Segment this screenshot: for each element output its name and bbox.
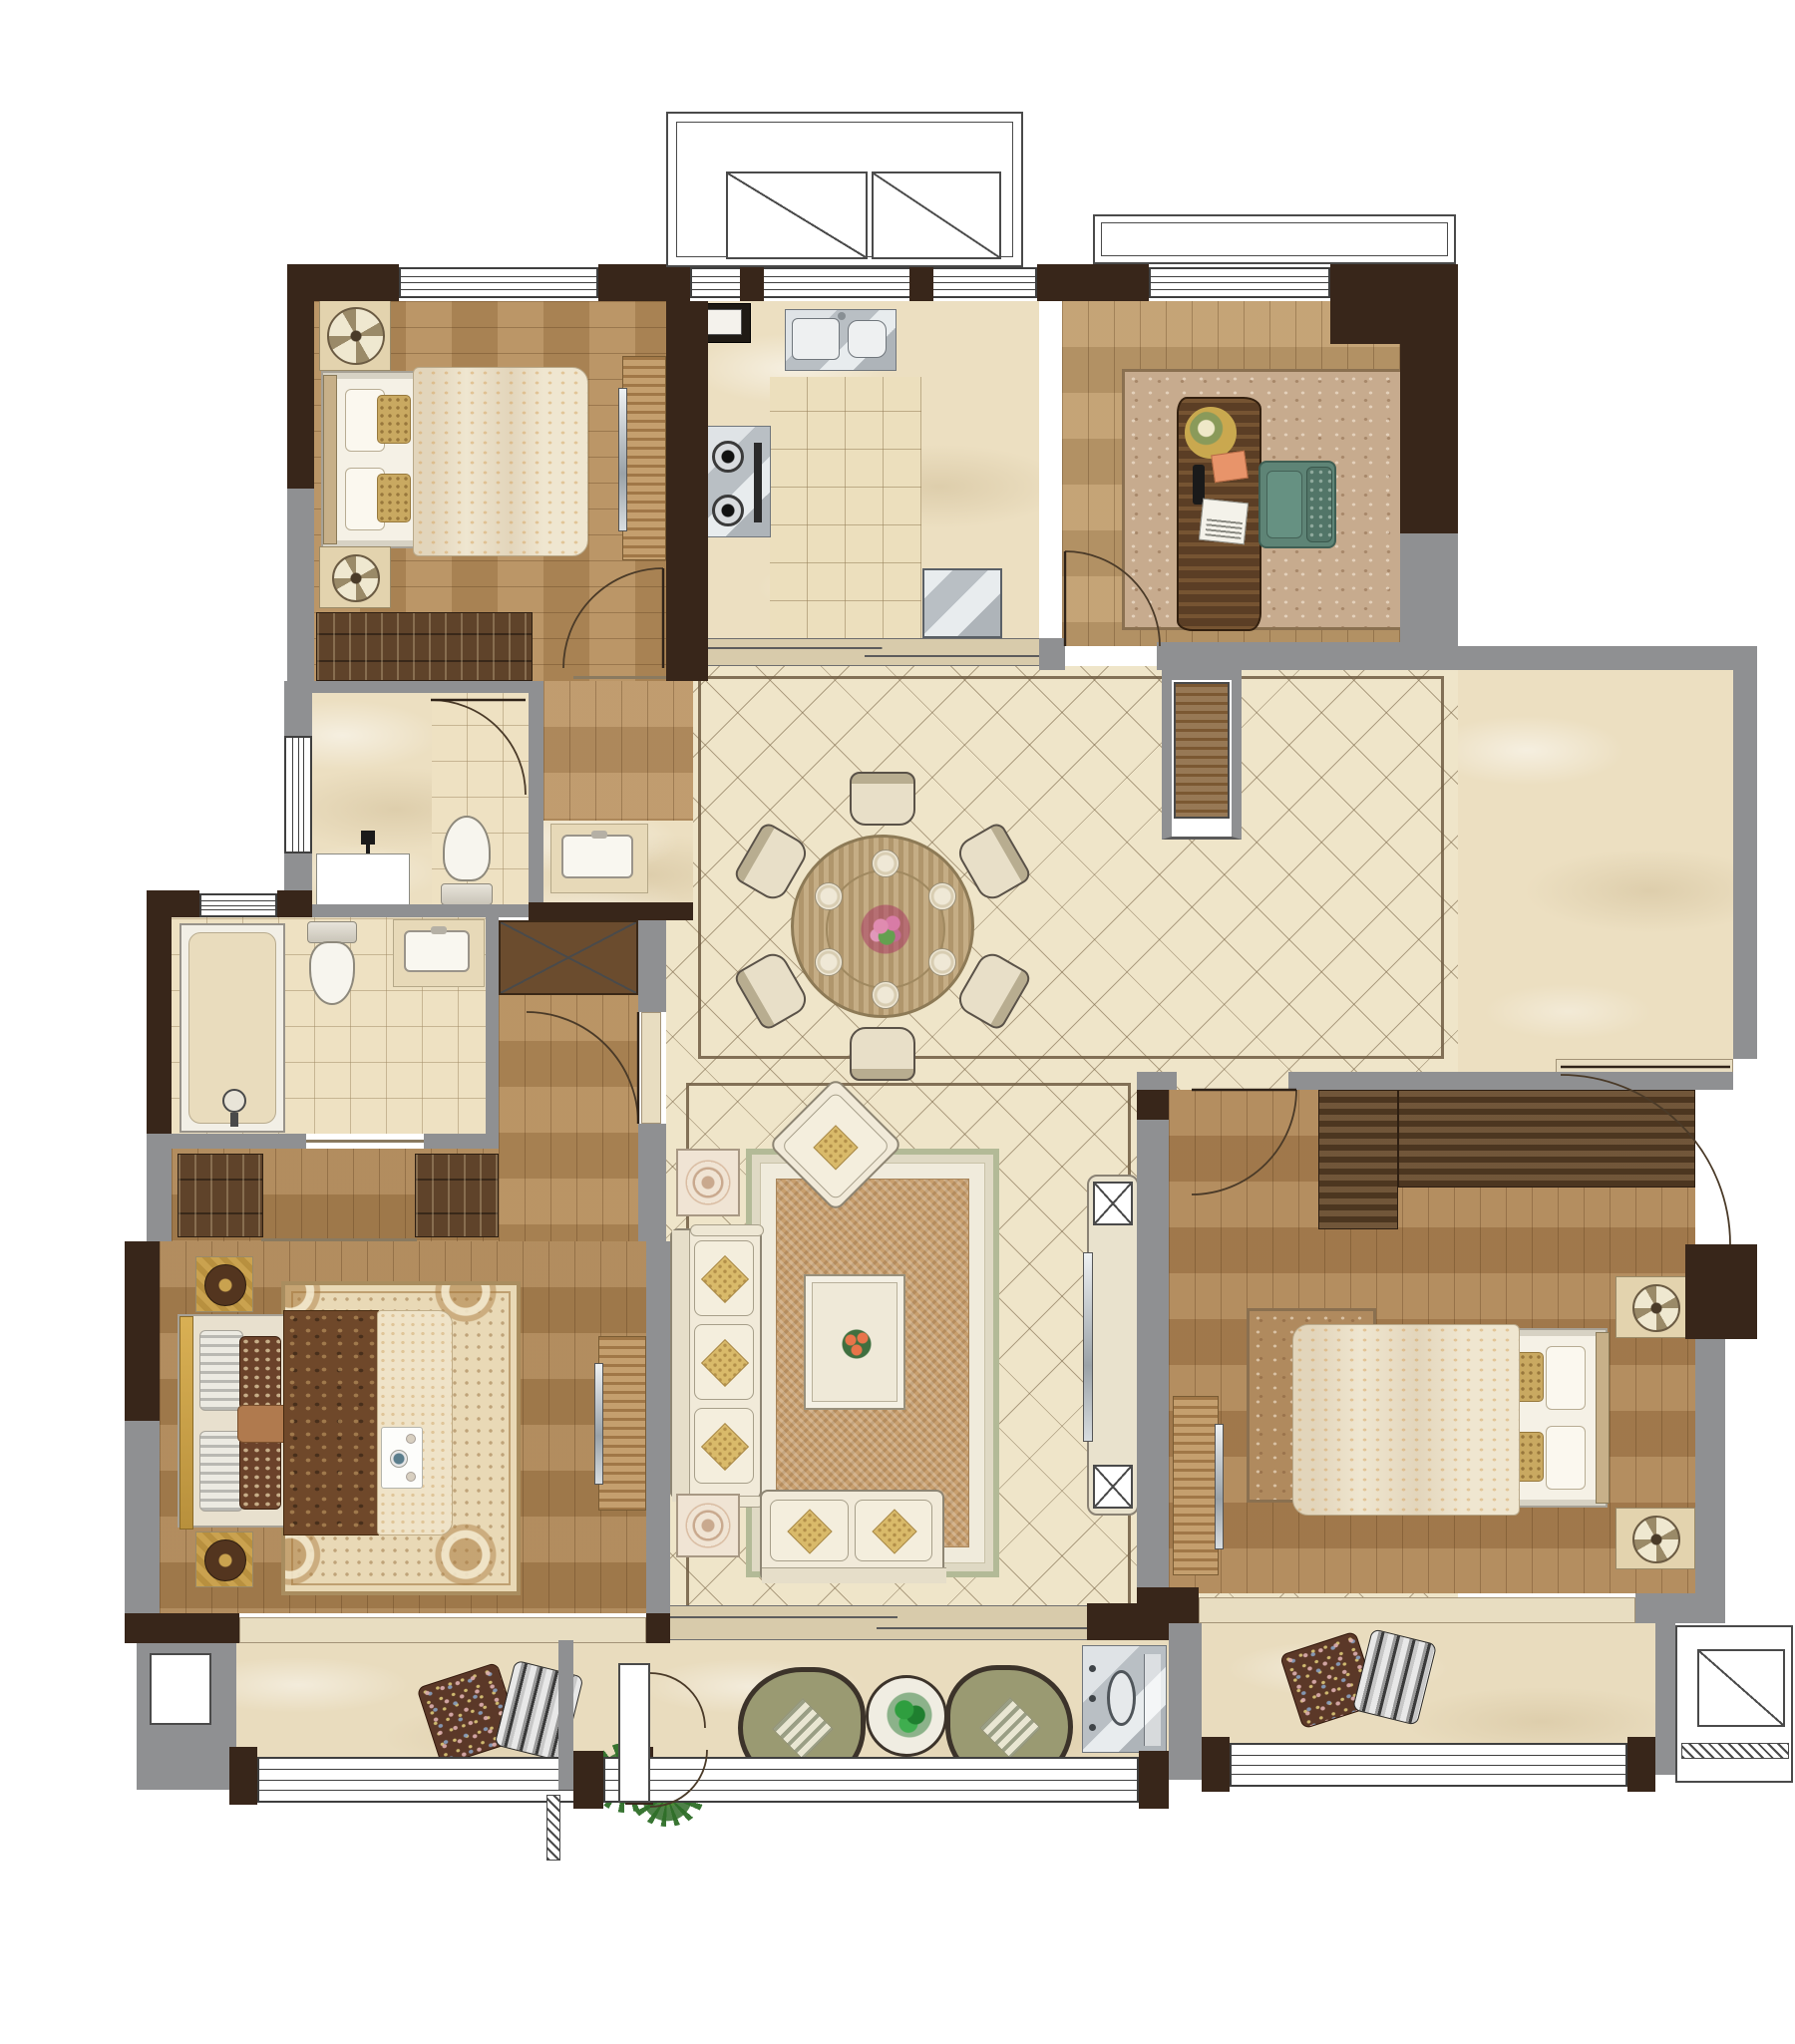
place-setting-icon xyxy=(928,948,956,976)
pillow xyxy=(1546,1346,1586,1410)
ac-pane-icon xyxy=(1697,1649,1785,1727)
seat-cushion xyxy=(855,1500,933,1561)
wall-segment xyxy=(1655,1623,1675,1775)
wall-segment xyxy=(284,681,543,693)
wall-segment xyxy=(1330,264,1458,344)
plate-icon xyxy=(390,1450,408,1468)
coffee-table xyxy=(804,1274,905,1410)
fan-lamp-icon xyxy=(1632,1516,1680,1563)
wall-segment xyxy=(1635,1593,1725,1623)
wall-segment xyxy=(638,920,666,1012)
seat-cushion xyxy=(694,1324,754,1400)
wardrobe-bedroom-2 xyxy=(316,612,533,681)
fan-lamp-icon xyxy=(327,307,385,365)
washer-knob-icon xyxy=(1089,1665,1096,1672)
wall-segment xyxy=(1400,533,1458,646)
wall-segment xyxy=(1039,638,1065,670)
dining-chair xyxy=(850,1027,915,1081)
side-table-b xyxy=(676,1494,740,1557)
pillow xyxy=(199,1330,243,1411)
toilet-bath-2 xyxy=(305,921,361,1011)
toilet-bowl xyxy=(443,816,491,881)
nightstand-bedroom-3-b xyxy=(1615,1508,1695,1569)
threshold-master-balcony xyxy=(239,1617,646,1643)
duvet xyxy=(413,367,588,556)
wall-segment xyxy=(229,1747,257,1805)
tv-screen-icon xyxy=(1215,1424,1224,1549)
window-study xyxy=(1149,267,1330,298)
toilet-bath-1 xyxy=(439,816,497,907)
bay-pane-icon xyxy=(726,171,868,259)
floor-pillows-balcony-3 xyxy=(1281,1631,1441,1726)
wall-segment xyxy=(1733,670,1757,1059)
pillow xyxy=(1546,1426,1586,1490)
wall-segment xyxy=(1202,1737,1230,1792)
wall-segment xyxy=(573,1751,603,1809)
vanity-sink-nook xyxy=(550,824,648,893)
floor-entry-foyer xyxy=(1458,670,1733,1072)
accent-pillow xyxy=(239,1436,281,1510)
kitchen-sink xyxy=(785,309,897,371)
wall-segment xyxy=(125,1241,160,1421)
washer-door-icon xyxy=(1107,1670,1136,1726)
faucet-icon xyxy=(591,831,607,839)
plate-icon xyxy=(406,1472,416,1482)
washer-knob-icon xyxy=(1089,1724,1096,1731)
bay-window-kitchen xyxy=(666,112,1023,267)
sliding-door-kitchen xyxy=(690,638,1039,666)
wall-segment xyxy=(529,902,693,920)
place-setting-icon xyxy=(815,882,843,910)
balcony-plant-table xyxy=(866,1675,947,1757)
record-player-icon xyxy=(204,1539,246,1581)
gas-stove xyxy=(701,426,771,537)
wall-segment xyxy=(638,1124,666,1241)
wall-section-hatch xyxy=(546,1795,560,1861)
tub-faucet-stem xyxy=(230,1113,238,1127)
headboard xyxy=(1596,1332,1610,1504)
accent-pillow xyxy=(239,1336,281,1410)
washer-knob-icon xyxy=(1089,1695,1096,1702)
tv-console-living xyxy=(1087,1175,1139,1516)
nightstand-master-b xyxy=(195,1532,253,1587)
storage-cabinet xyxy=(499,920,638,995)
headboard xyxy=(323,375,337,544)
nightstand-master-a xyxy=(195,1256,253,1312)
gold-pillow-icon xyxy=(701,1339,749,1387)
floor-pillow-striped xyxy=(1352,1628,1437,1726)
nightstand-bedroom-2-a xyxy=(319,299,391,371)
window-bath-1 xyxy=(284,736,312,853)
duct-shaft xyxy=(1162,670,1242,840)
wall-segment xyxy=(287,264,399,301)
floor-master-corridor xyxy=(499,995,638,1244)
chair-back-cushion xyxy=(1306,467,1332,542)
wardrobe-closet-b xyxy=(415,1154,499,1237)
balcony-side-window xyxy=(150,1653,211,1725)
tv-cabinet-bedroom-3 xyxy=(1173,1396,1219,1575)
window-balcony-3 xyxy=(1230,1743,1627,1787)
gold-pillow-icon xyxy=(872,1509,916,1553)
burner-icon xyxy=(712,495,744,526)
wall-segment xyxy=(909,264,933,301)
sofa-back xyxy=(762,1567,946,1583)
wall-segment xyxy=(1169,1623,1202,1780)
tv-screen-icon xyxy=(618,388,627,531)
wall-segment xyxy=(1400,646,1757,670)
washing-machine xyxy=(1082,1645,1167,1753)
wall-segment xyxy=(284,693,312,736)
floor-plan-canvas xyxy=(0,0,1795,2044)
wall-segment xyxy=(558,1640,573,1790)
ac-ledge xyxy=(1675,1625,1793,1783)
wall-segment xyxy=(740,264,764,301)
folding-door-balcony xyxy=(618,1663,650,1803)
gold-pillow-icon xyxy=(701,1423,749,1471)
sofa-arm xyxy=(690,1224,764,1236)
speaker-icon xyxy=(1093,1182,1133,1225)
wall-segment xyxy=(147,917,172,1134)
tv-screen-icon xyxy=(594,1363,603,1485)
bed-bedroom-3 xyxy=(1298,1328,1608,1508)
threshold-master-corridor xyxy=(641,1012,661,1124)
sink-basin xyxy=(404,930,470,972)
wall-segment xyxy=(598,264,690,301)
ac-hatch xyxy=(1681,1743,1789,1759)
fan-lamp-icon xyxy=(1632,1284,1680,1332)
wall-segment xyxy=(1685,1244,1757,1339)
threshold-bath-2 xyxy=(306,1140,424,1143)
breakfast-tray xyxy=(381,1427,423,1489)
sliding-door-living-balcony xyxy=(666,1605,1087,1640)
nightstand-bedroom-2-b xyxy=(319,546,391,608)
bed-bedroom-2 xyxy=(321,371,578,548)
wall-segment xyxy=(147,1134,306,1149)
shower-tray xyxy=(316,853,410,905)
desk-study xyxy=(1177,397,1261,631)
wall-segment xyxy=(1400,344,1458,533)
wall-segment xyxy=(287,489,314,681)
bay-pane-icon xyxy=(872,171,1001,259)
place-setting-icon xyxy=(815,948,843,976)
wall-segment xyxy=(1695,1339,1725,1593)
tv-cabinet-master xyxy=(598,1336,646,1511)
accent-pillow xyxy=(377,474,411,522)
wall-segment xyxy=(666,638,690,670)
wall-segment xyxy=(1627,1737,1655,1792)
wall-segment xyxy=(1139,1751,1169,1809)
place-setting-icon xyxy=(928,882,956,910)
flower-centerpiece-icon xyxy=(856,899,915,959)
dining-area-frame xyxy=(698,676,1444,1059)
wall-segment xyxy=(125,1613,239,1643)
toilet-bowl xyxy=(309,941,355,1005)
wall-segment xyxy=(277,890,312,917)
paper-icon xyxy=(1211,451,1249,483)
wall-segment xyxy=(147,1149,172,1241)
faucet-icon xyxy=(431,926,447,934)
lounge-pillow-icon xyxy=(772,1698,834,1760)
window-bedroom-2 xyxy=(399,267,598,298)
wall-segment xyxy=(1137,1072,1177,1090)
wall-segment xyxy=(125,1421,160,1613)
washer-panel xyxy=(1144,1654,1161,1746)
wall-segment xyxy=(284,904,529,917)
place-setting-icon xyxy=(872,850,899,877)
floor-hall-north xyxy=(543,681,693,821)
tv-screen-icon xyxy=(1083,1252,1093,1442)
wall-segment xyxy=(287,301,314,489)
sofa-back xyxy=(672,1230,690,1502)
headboard xyxy=(179,1316,193,1530)
wardrobe-closet-a xyxy=(178,1154,263,1237)
sink-basin xyxy=(848,320,887,358)
cushion xyxy=(237,1405,289,1443)
bathtub xyxy=(179,923,285,1133)
blanket-cream xyxy=(377,1310,453,1535)
side-table-a xyxy=(676,1149,740,1216)
nightstand-bedroom-3-a xyxy=(1615,1276,1695,1338)
duvet xyxy=(1292,1324,1520,1516)
wall-segment xyxy=(1288,1072,1733,1090)
loveseat xyxy=(760,1490,944,1581)
dining-table xyxy=(791,835,974,1018)
tub-faucet-icon xyxy=(222,1089,246,1113)
faucet-icon xyxy=(838,312,846,320)
sink-basin xyxy=(792,318,840,360)
gold-pillow-icon xyxy=(701,1255,749,1303)
bed-master xyxy=(178,1314,445,1528)
globe-icon xyxy=(1185,407,1237,459)
wall-segment xyxy=(1137,1090,1169,1120)
wall-segment xyxy=(486,917,499,1149)
seat-cushion xyxy=(770,1500,849,1561)
armchair-study xyxy=(1258,461,1336,548)
plate-icon xyxy=(406,1434,416,1444)
toilet-tank xyxy=(307,921,357,943)
pillow xyxy=(199,1431,243,1512)
threshold-closet xyxy=(261,1238,417,1241)
wall-segment xyxy=(1137,1587,1199,1623)
wall-segment xyxy=(1037,264,1149,301)
tv-cabinet-bedroom-2 xyxy=(622,356,666,560)
gold-pillow-icon xyxy=(788,1509,833,1553)
fan-lamp-icon xyxy=(332,554,380,602)
wall-segment xyxy=(646,1241,670,1613)
seat-cushion xyxy=(694,1240,754,1316)
place-setting-icon xyxy=(872,981,899,1009)
ledge-inner xyxy=(1101,222,1448,256)
record-player-icon xyxy=(204,1264,246,1306)
lounge-pillow-icon xyxy=(979,1697,1041,1759)
accent-pillow xyxy=(377,395,411,444)
seat-cushion xyxy=(694,1408,754,1484)
duvet-brown xyxy=(283,1310,379,1535)
wall-segment xyxy=(666,301,708,518)
laptop-icon xyxy=(1199,499,1249,545)
flower-arrangement-icon xyxy=(837,1324,877,1364)
fridge xyxy=(922,568,1002,638)
vanity-sink-bath-2 xyxy=(393,919,485,987)
wall-segment xyxy=(1137,1120,1169,1593)
window-balcony-south xyxy=(603,1757,1139,1803)
laptop-keys xyxy=(1205,517,1243,539)
chair-seat xyxy=(1266,471,1302,538)
burner-icon xyxy=(712,441,744,473)
control-strip xyxy=(754,443,762,522)
wall-segment xyxy=(529,693,543,920)
floor-kitchen-grid xyxy=(770,377,921,638)
window-ledge-study xyxy=(1093,214,1456,264)
threshold-balcony-3 xyxy=(1199,1597,1635,1623)
wardrobe-bedroom-3-a xyxy=(1318,1090,1398,1229)
speaker-icon xyxy=(1093,1465,1133,1509)
dining-chair xyxy=(850,772,915,826)
wall-segment xyxy=(147,890,199,917)
toilet-tank xyxy=(441,883,493,905)
sink-basin xyxy=(561,835,633,878)
shaft-duct-icon xyxy=(1174,682,1230,819)
wardrobe-bedroom-3-b xyxy=(1398,1090,1695,1188)
plant-icon xyxy=(884,1689,935,1741)
drain-head xyxy=(361,831,375,845)
window-bath-2 xyxy=(199,893,277,917)
threshold-bedroom-2 xyxy=(573,676,666,679)
sofa-three-seat xyxy=(670,1228,762,1500)
